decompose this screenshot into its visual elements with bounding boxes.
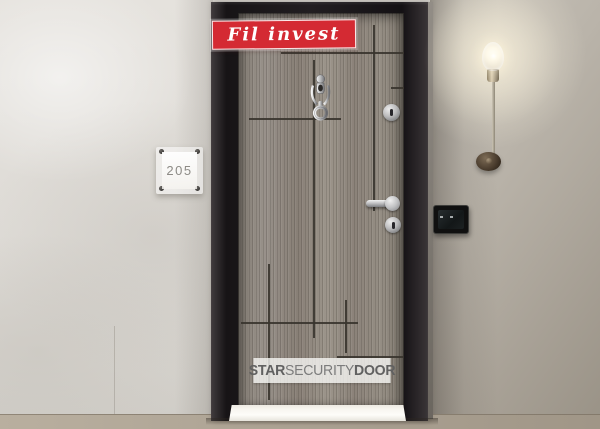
door-threshold — [229, 405, 406, 421]
lamp-stem — [492, 82, 495, 156]
left-wall — [0, 0, 213, 429]
watermark-star: STAR — [249, 362, 285, 379]
bulb-filament — [490, 52, 497, 60]
door-knocker-icon — [309, 74, 332, 124]
handle-rose-icon — [385, 196, 400, 211]
room-number-plate: 205 — [156, 147, 203, 194]
brand-banner: Fil invest — [212, 19, 356, 50]
security-door-product-photo: 205 Fil invest STARSECURITYDOOR — [0, 0, 600, 429]
door-groove-line — [345, 300, 347, 353]
door-groove-line — [241, 322, 358, 324]
door-groove-line — [391, 87, 404, 89]
door-groove-line — [281, 52, 404, 54]
watermark-door: DOOR — [354, 362, 395, 379]
door-leaf — [238, 13, 404, 407]
keyhole-cylinder-top-icon — [383, 104, 400, 121]
watermark-label: STARSECURITYDOOR — [253, 358, 390, 383]
lamp-mount-cap — [486, 158, 492, 164]
wall-seam — [114, 326, 115, 418]
doorbell-detail — [440, 216, 443, 218]
keyhole-cylinder-bottom-icon — [385, 217, 401, 233]
doorbell-switch — [433, 205, 469, 234]
doorbell-detail — [450, 216, 453, 218]
room-number: 205 — [162, 152, 197, 189]
doorbell-panel — [438, 210, 464, 229]
watermark-security: SECURITY — [285, 362, 354, 379]
